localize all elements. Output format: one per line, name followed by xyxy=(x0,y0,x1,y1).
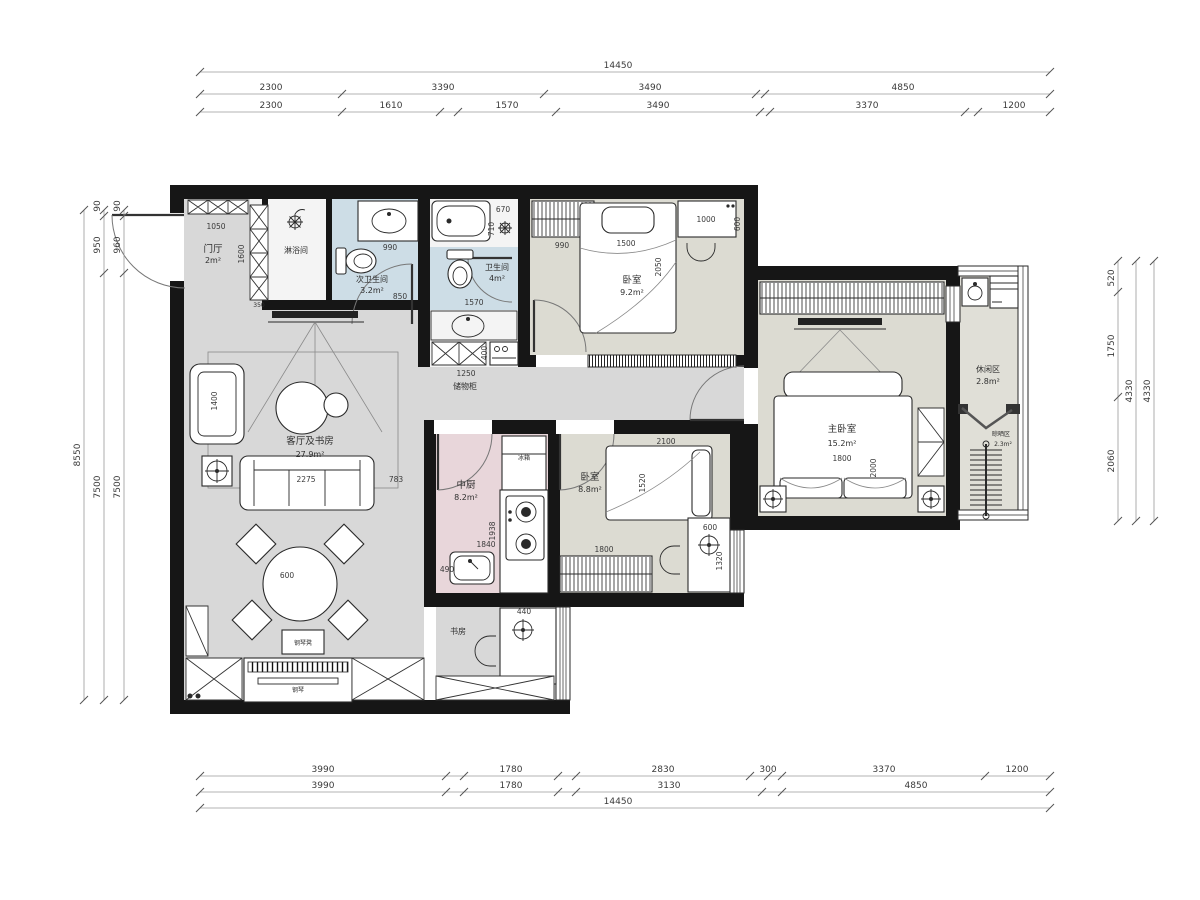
dim-label: 3990 xyxy=(312,781,335,791)
dim-label: 2000 xyxy=(869,458,878,477)
floor-plan-page: 门厅 2m² 淋浴间 次卫生间 3.2m² 卫生间 4m² 卧室 9.2m² 主… xyxy=(0,0,1200,900)
balcony-window-right xyxy=(1018,266,1028,520)
dim-label: 1500 xyxy=(616,239,635,248)
dim-label: 2050 xyxy=(654,257,663,276)
dim-label: 850 xyxy=(393,292,408,301)
dim-label: 300 xyxy=(759,765,776,775)
side-cabinet xyxy=(918,408,944,476)
piano-stool-label: 钢琴凳 xyxy=(294,639,312,647)
dim-label: 2100 xyxy=(656,437,675,446)
room-label: 次卫生间 xyxy=(356,274,388,284)
bedroom1-corridor-glazing xyxy=(588,355,736,367)
piano xyxy=(244,658,352,702)
room-label: 主卧室 xyxy=(828,423,857,435)
dim-label: 90 xyxy=(93,200,103,212)
dim-label: 1520 xyxy=(638,473,647,492)
nightstand-right xyxy=(918,486,944,512)
dim-label: 7500 xyxy=(93,475,103,498)
shower-head-icon xyxy=(498,221,512,235)
dim-label: 1780 xyxy=(500,765,523,775)
fridge-label: 冰箱 xyxy=(518,454,530,462)
dim-label: 670 xyxy=(496,205,511,214)
room-area: 4m² xyxy=(489,274,505,283)
room-label: 书房 xyxy=(450,626,466,636)
room-label: 储物柜 xyxy=(453,381,477,391)
dim-label: 1600 xyxy=(237,244,246,263)
hall-storage-boxes xyxy=(432,342,486,365)
bedroom2-window xyxy=(730,530,744,593)
side-table-lamp xyxy=(202,456,232,486)
room-area: 2m² xyxy=(205,256,221,265)
dim-label: 440 xyxy=(517,607,532,616)
piano-label: 钢琴 xyxy=(292,686,304,694)
room-label: 休闲区 xyxy=(976,364,1000,374)
dim-label: 1610 xyxy=(380,101,403,111)
dim-label: 14450 xyxy=(604,797,633,807)
dim-label: 710 xyxy=(487,222,496,237)
room-area: 8.2m² xyxy=(454,493,478,502)
dim-label: 2830 xyxy=(652,765,675,775)
dim-label: 783 xyxy=(389,475,404,484)
dim-label: 1400 xyxy=(210,391,219,410)
fridge xyxy=(502,436,546,490)
kitchen-sink-icon xyxy=(450,552,494,584)
dim-label: 1320 xyxy=(715,551,724,570)
entry-closet xyxy=(250,205,268,300)
dim-label: 3990 xyxy=(312,765,335,775)
dim-label: 3490 xyxy=(639,83,662,93)
dim-label: 4850 xyxy=(892,83,915,93)
dim-label: 490 xyxy=(440,565,455,574)
dim-label: 600 xyxy=(280,571,295,580)
dim-label: 990 xyxy=(555,241,570,250)
dim-label: 1800 xyxy=(594,545,613,554)
study-desk xyxy=(500,608,556,684)
dim-label: 3130 xyxy=(658,781,681,791)
dim-label: 1938 xyxy=(488,521,497,540)
dim-label: 2275 xyxy=(296,475,315,484)
room-label: 中厨 xyxy=(456,479,476,491)
dim-label: 960 xyxy=(113,236,123,253)
dim-label: 3490 xyxy=(647,101,670,111)
dim-label: 1570 xyxy=(464,298,483,307)
dim-label: 600 xyxy=(733,217,742,232)
dim-label: 3370 xyxy=(873,765,896,775)
dim-label: 2060 xyxy=(1107,449,1117,472)
toilet-icon xyxy=(447,250,473,288)
room-label: 淋浴间 xyxy=(284,245,308,255)
balcony-floor xyxy=(960,276,1018,512)
dim-label: 1050 xyxy=(206,222,225,231)
room-label: 卫生间 xyxy=(485,262,509,272)
room-area: 8.8m² xyxy=(578,485,602,494)
dim-label: 4330 xyxy=(1125,379,1135,402)
bed xyxy=(774,372,912,498)
dim-label: 600 xyxy=(703,523,718,532)
floor-plan-drawing: 门厅 2m² 淋浴间 次卫生间 3.2m² 卫生间 4m² 卧室 9.2m² 主… xyxy=(0,0,1200,900)
dimension-lines-bottom: 3990 1780 2830 300 3370 1200 3990 1780 3… xyxy=(196,765,1054,812)
floor-socket xyxy=(196,694,201,699)
wardrobe-hatch xyxy=(760,282,944,314)
room-area: 9.2m² xyxy=(620,288,644,297)
dim-label: 7500 xyxy=(113,475,123,498)
balcony-sink xyxy=(962,278,988,306)
room-label: 晾晒区 xyxy=(992,430,1010,438)
room-area: 15.2m² xyxy=(828,439,857,448)
bathtub-icon xyxy=(432,201,490,241)
dim-label: 1800 xyxy=(832,454,851,463)
dim-label: 4850 xyxy=(905,781,928,791)
bed xyxy=(606,446,712,520)
room-label: 门厅 xyxy=(203,243,223,255)
study-shelf xyxy=(436,676,554,700)
washing-machine-icon xyxy=(990,276,1018,308)
shelf-right xyxy=(352,658,424,700)
floor-socket xyxy=(188,694,193,699)
balcony-window-bottom xyxy=(958,510,1028,520)
room-label: 卧室 xyxy=(622,274,641,286)
stove-icon xyxy=(506,496,544,560)
dim-label: 520 xyxy=(1107,269,1117,286)
dim-label: 14450 xyxy=(604,61,633,71)
dim-label: 950 xyxy=(93,236,103,253)
dim-label: 1200 xyxy=(1003,101,1026,111)
entry-top-cabinet xyxy=(188,200,248,214)
dim-label: 1570 xyxy=(496,101,519,111)
dimension-lines-left: 8550 90 950 7500 90 960 7500 xyxy=(73,200,128,704)
dim-label: 8550 xyxy=(73,443,83,466)
dim-label: 90 xyxy=(113,200,123,212)
dim-label: 350 xyxy=(253,302,265,309)
dim-label: 2300 xyxy=(260,101,283,111)
room-area: 27.9m² xyxy=(296,450,325,459)
bath2-counter xyxy=(358,201,418,241)
room-area: 2.8m² xyxy=(976,377,1000,386)
dim-label: 1200 xyxy=(1006,765,1029,775)
dim-label: 2300 xyxy=(260,83,283,93)
hall-appliance xyxy=(490,342,518,365)
dim-label: 1750 xyxy=(1107,334,1117,357)
dimension-lines-right: 520 1750 2060 4330 4330 xyxy=(1107,257,1158,525)
shelf-left xyxy=(186,658,242,700)
dim-label: 1780 xyxy=(500,781,523,791)
master-balcony-door xyxy=(946,286,960,322)
room-area: 3.2m² xyxy=(360,286,384,295)
dim-label: 3390 xyxy=(432,83,455,93)
nightstand-left xyxy=(760,486,786,512)
dimension-lines-top: 14450 2300 3390 3490 4850 2300 1610 1570… xyxy=(196,61,1054,116)
wardrobe-hatch xyxy=(560,556,652,592)
dim-label: 990 xyxy=(383,243,398,252)
study-window xyxy=(556,607,570,700)
room-area: 2.3m² xyxy=(994,441,1012,448)
dim-label: 4330 xyxy=(1143,379,1153,402)
dim-label: 400 xyxy=(480,346,489,361)
dim-label: 1250 xyxy=(456,369,475,378)
dim-label: 3370 xyxy=(856,101,879,111)
toilet-icon xyxy=(336,248,376,274)
room-label: 卧室 xyxy=(580,471,599,483)
dim-label: 1000 xyxy=(696,215,715,224)
room-label: 客厅及书房 xyxy=(286,435,334,447)
bookcase xyxy=(186,606,208,656)
